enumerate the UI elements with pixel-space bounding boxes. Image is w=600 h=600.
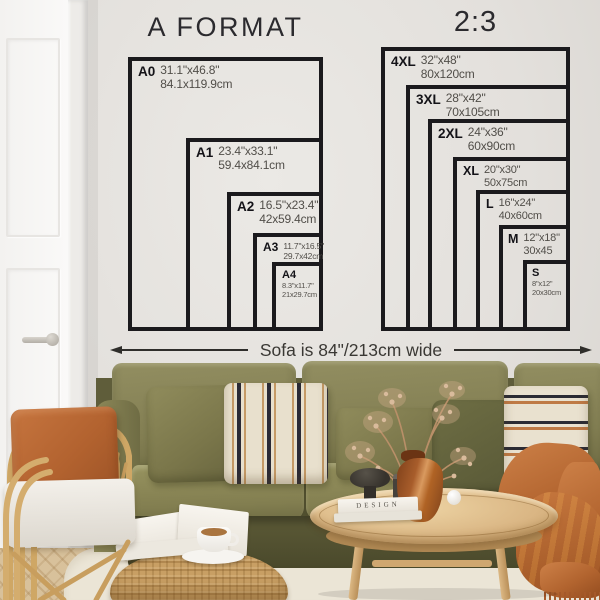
size-label-a2: A2 16.5"x23.4" 42x59.4cm [237, 199, 318, 227]
size-label-m: M 12"x18" 30x45 [508, 232, 560, 257]
size-cm: 21x29.7cm [282, 291, 317, 300]
size-box-s: S 8"x12" 20x30cm [523, 260, 570, 331]
size-code: A1 [196, 145, 213, 160]
table-stretcher [372, 560, 492, 567]
size-cm: 50x75cm [484, 177, 527, 190]
pillow-striped-vertical [224, 383, 328, 484]
size-label-a4: A4 8.3"x11.7" 21x29.7cm [282, 269, 317, 299]
size-dims: 23.4"x33.1" 59.4x84.1cm [218, 145, 285, 173]
size-cm: 80x120cm [421, 68, 475, 82]
size-code: 2XL [438, 126, 463, 141]
rattan-chair-front [0, 392, 148, 600]
size-cm: 70x105cm [446, 106, 500, 120]
size-label-xl: XL 20"x30" 50x75cm [463, 164, 527, 189]
size-cm: 84.1x119.9cm [160, 78, 232, 92]
size-inches: 12"x18" [523, 232, 559, 245]
size-dims: 31.1"x46.8" 84.1x119.9cm [160, 64, 232, 92]
size-dims: 16"x24" 40x60cm [499, 197, 542, 222]
size-dims: 20"x30" 50x75cm [484, 164, 527, 189]
size-label-3xl: 3XL 28"x42" 70x105cm [416, 92, 500, 120]
measure-line [454, 349, 580, 351]
size-code: M [508, 232, 518, 246]
size-label-a0: A0 31.1"x46.8" 84.1x119.9cm [138, 64, 232, 92]
size-code: A0 [138, 64, 155, 79]
size-code: XL [463, 164, 479, 178]
size-box-a4: A4 8.3"x11.7" 21x29.7cm [272, 262, 323, 331]
black-bowl [350, 468, 390, 488]
size-code: 3XL [416, 92, 441, 107]
measure-arrow-right-icon [580, 346, 592, 354]
size-dims: 32"x48" 80x120cm [421, 54, 475, 82]
size-cm: 30x45 [523, 245, 559, 258]
size-code: L [486, 197, 494, 211]
two-three-title: 2:3 [381, 6, 570, 39]
size-code: A2 [237, 199, 254, 214]
measure-arrow-left-icon [110, 346, 122, 354]
size-dims: 24"x36" 60x90cm [468, 126, 515, 154]
measure-label: Sofa is 84"/213cm wide [248, 340, 454, 361]
size-label-a3: A3 11.7"x16.5" 29.7x42cm [263, 240, 324, 262]
size-label-2xl: 2XL 24"x36" 60x90cm [438, 126, 515, 154]
door-panel-top [6, 38, 60, 237]
size-code: 4XL [391, 54, 416, 69]
size-cm: 29.7x42cm [283, 252, 324, 262]
size-label-4xl: 4XL 32"x48" 80x120cm [391, 54, 475, 82]
size-inches: 16.5"x23.4" [259, 199, 318, 213]
sofa-width-measure: Sofa is 84"/213cm wide [110, 340, 592, 360]
size-label-l: L 16"x24" 40x60cm [486, 197, 542, 222]
door-handle-rosette [46, 333, 59, 346]
decor-egg [447, 490, 461, 505]
size-code: S [532, 267, 561, 279]
size-dims: 8.3"x11.7" 21x29.7cm [282, 281, 317, 299]
size-inches: 24"x36" [468, 126, 515, 140]
size-inches: 20"x30" [484, 164, 527, 177]
size-dims: 28"x42" 70x105cm [446, 92, 500, 120]
size-dims: 16.5"x23.4" 42x59.4cm [259, 199, 318, 227]
size-inches: 31.1"x46.8" [160, 64, 232, 78]
size-code: A3 [263, 240, 278, 254]
size-cm: 42x59.4cm [259, 213, 318, 227]
size-label-a1: A1 23.4"x33.1" 59.4x84.1cm [196, 145, 285, 173]
size-inches: 23.4"x33.1" [218, 145, 285, 159]
size-cm: 59.4x84.1cm [218, 159, 285, 173]
scene: A FORMAT A0 31.1"x46.8" 84.1x119.9cm A1 … [0, 0, 600, 600]
size-code: A4 [282, 269, 317, 281]
size-inches: 32"x48" [421, 54, 475, 68]
size-inches: 28"x42" [446, 92, 500, 106]
size-cm: 20x30cm [532, 289, 561, 298]
size-inches: 16"x24" [499, 197, 542, 210]
measure-line [122, 349, 248, 351]
coffee-surface [201, 528, 227, 536]
size-dims: 11.7"x16.5" 29.7x42cm [283, 240, 324, 262]
size-dims: 12"x18" 30x45 [523, 232, 559, 257]
size-label-s: S 8"x12" 20x30cm [532, 267, 561, 297]
a-format-title: A FORMAT [128, 12, 323, 43]
size-cm: 60x90cm [468, 140, 515, 154]
size-dims: 8"x12" 20x30cm [532, 279, 561, 297]
size-cm: 40x60cm [499, 210, 542, 223]
